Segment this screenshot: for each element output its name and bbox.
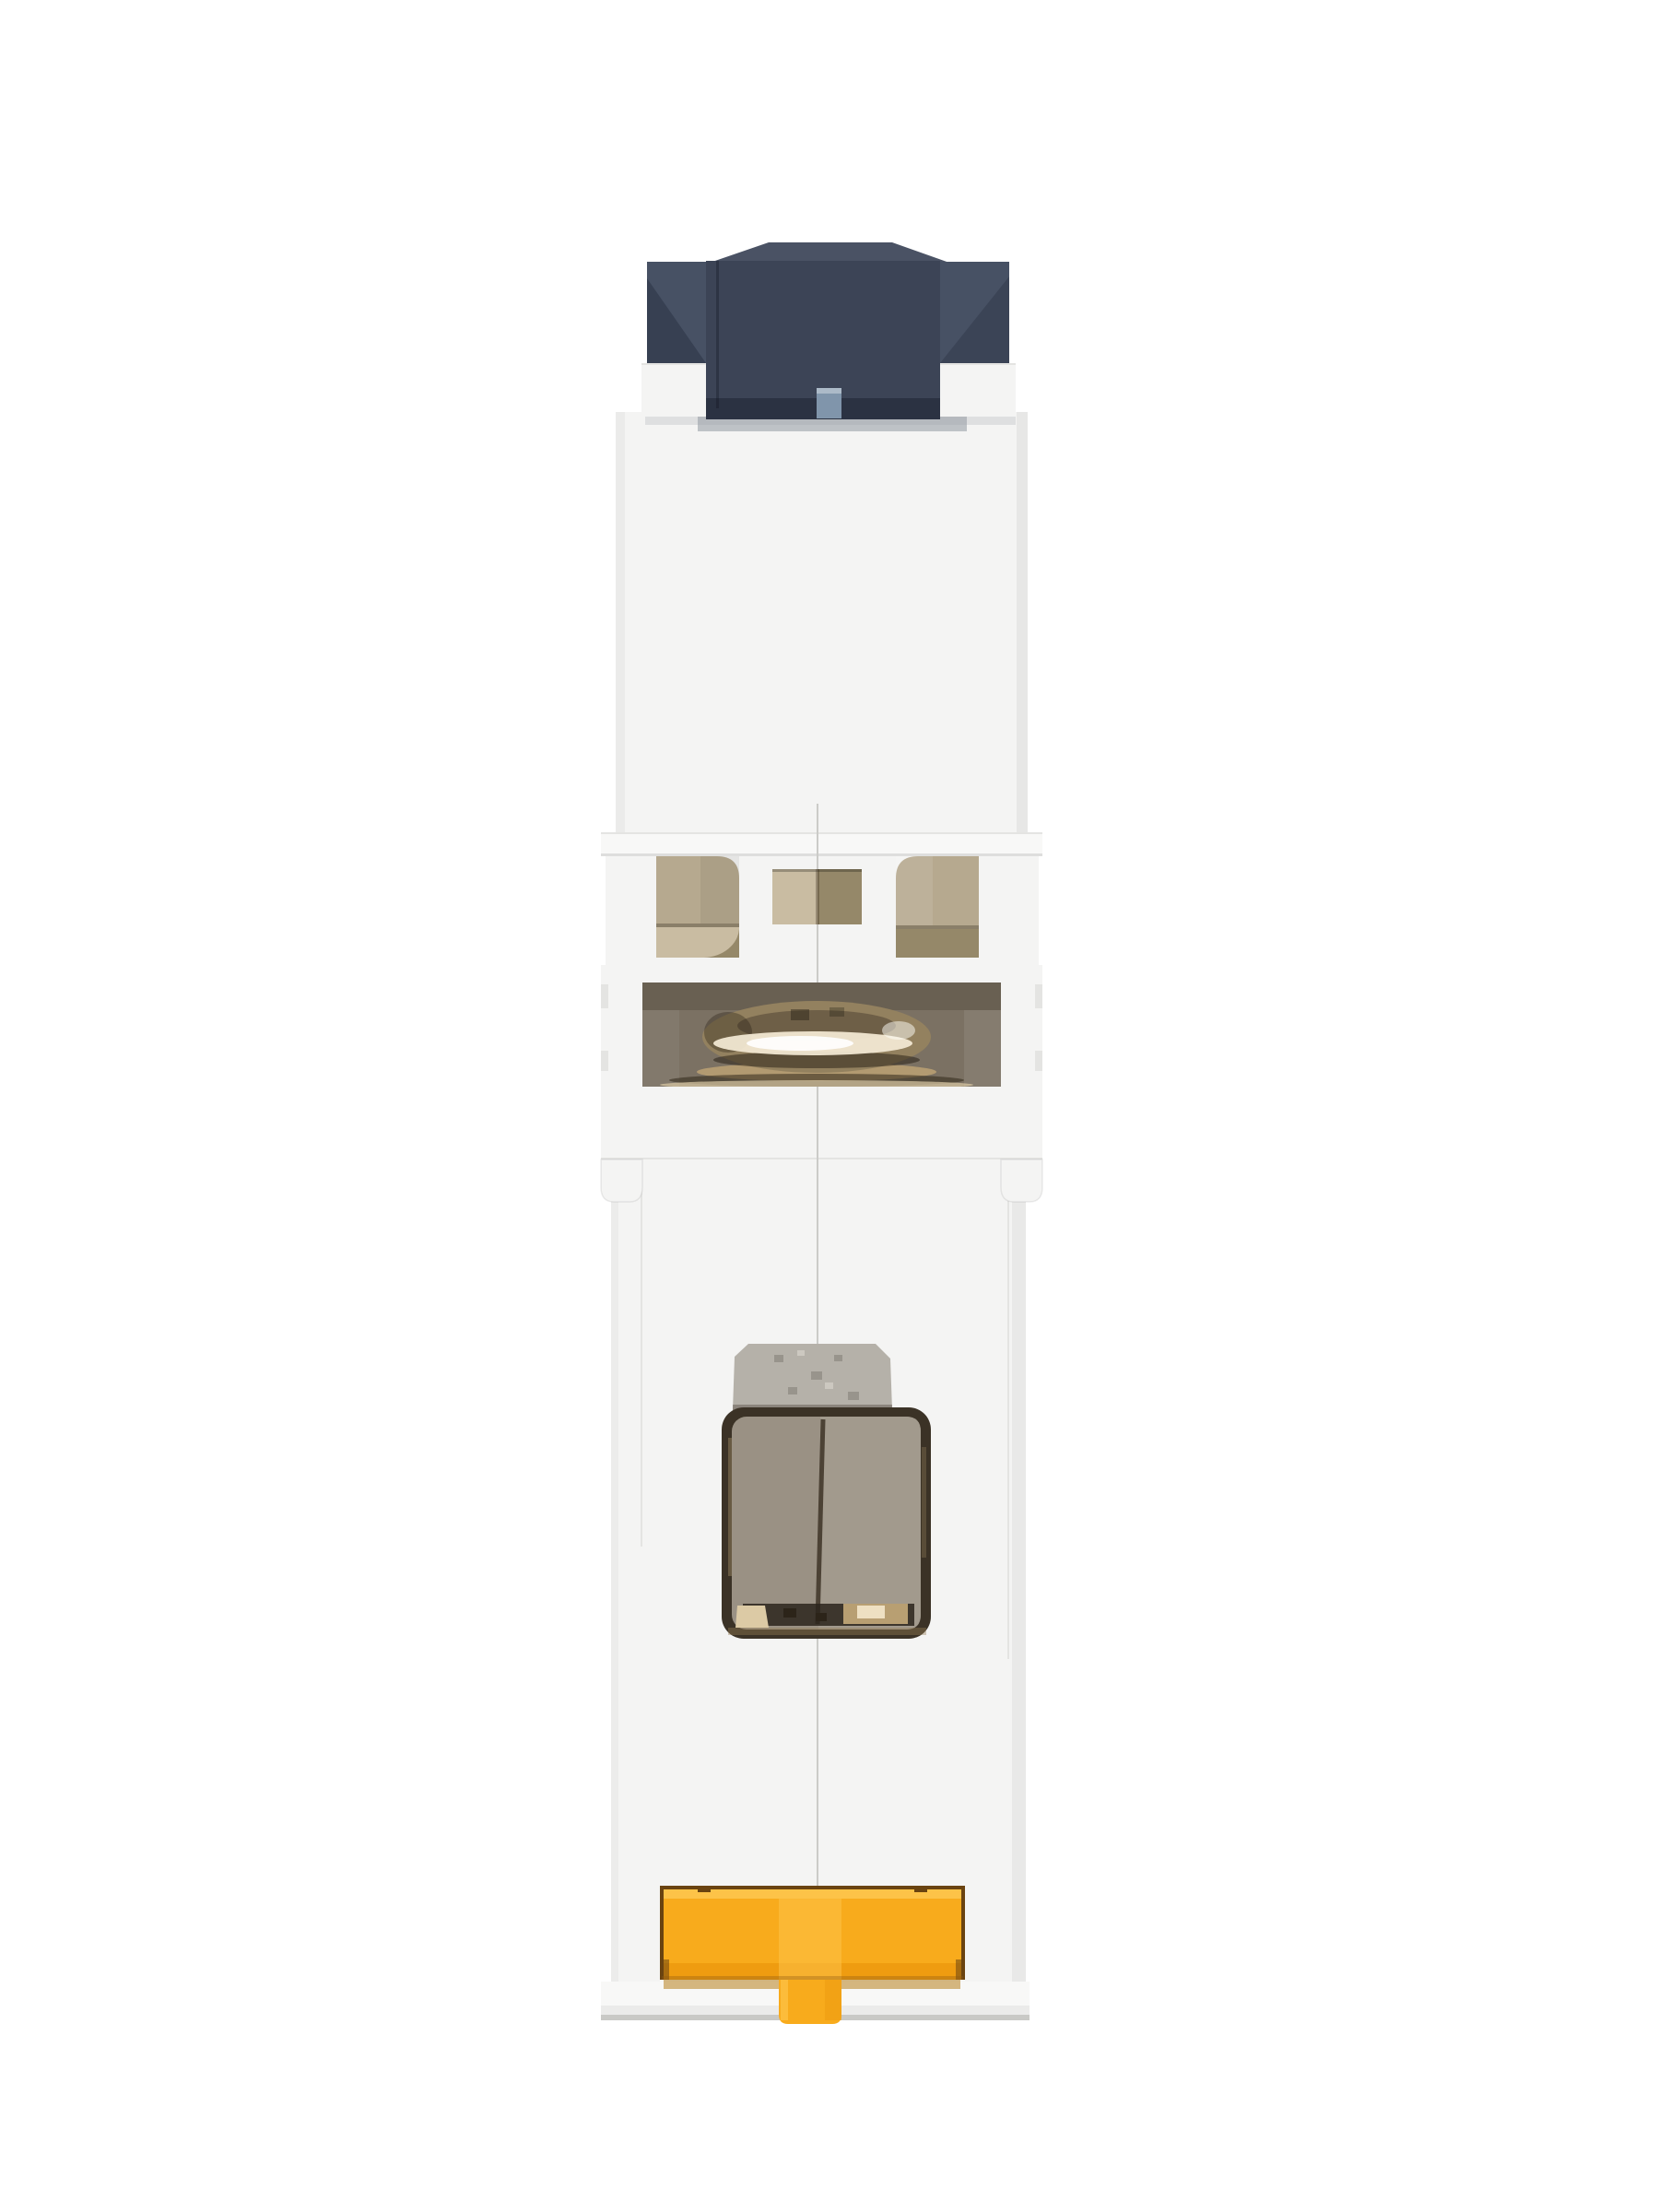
housing-right-notch-2 [1035, 1051, 1042, 1071]
right-vent-lower [896, 929, 979, 958]
housing-right-notch-1 [1035, 984, 1042, 1008]
plate-speckle [848, 1392, 859, 1400]
left-vent-inner-shade [700, 856, 739, 924]
housing-left-notch-1 [601, 984, 608, 1008]
inspection-panel-right [818, 1417, 921, 1630]
toggle-column-seam [716, 261, 719, 408]
housing-left-notch-2 [601, 1051, 608, 1071]
cavity-left-light [642, 1010, 679, 1087]
breaker-photo-canvas [0, 0, 1659, 2212]
housing-lower-left-groove [641, 1159, 642, 1547]
housing-upper-right-shade [1017, 412, 1028, 836]
housing [601, 363, 1042, 2020]
plate-speckle-light [797, 1350, 805, 1356]
inspection-window [722, 1407, 931, 1639]
plate-speckle [774, 1355, 783, 1362]
plate-speckle [834, 1355, 842, 1361]
center-slot-dark-half [818, 869, 862, 924]
housing-lower-right-shade [1012, 1159, 1026, 2020]
housing-collar-top-line [601, 832, 1042, 834]
housing-left-foot [601, 1159, 642, 1202]
housing-upper-body [616, 412, 1028, 836]
plate-speckle-light [825, 1382, 833, 1389]
housing-right-foot [1001, 1159, 1042, 1202]
housing-cavity-band-bottom-line [601, 1158, 1042, 1159]
clip-tab-left-highlight [781, 1980, 788, 2020]
inspection-dark-speckle [816, 1613, 827, 1621]
right-vent-ledge [896, 925, 979, 929]
housing-collar [601, 832, 1042, 856]
clip-top-notch-left [698, 1886, 711, 1892]
clip-bar-center-light [779, 1895, 841, 1980]
clip-top-notch-right [914, 1886, 927, 1892]
product-photo [0, 0, 1659, 2212]
frame-right-glint [922, 1447, 926, 1558]
plate-speckle [788, 1387, 797, 1394]
cavity-right-light [964, 1010, 1001, 1087]
latch-plate [733, 1344, 892, 1410]
right-vent-inner-light [896, 856, 933, 925]
housing-collar-shadow [601, 853, 1042, 856]
loop-slot-mark-2 [829, 1007, 844, 1017]
housing-lower-right-groove [1007, 1198, 1009, 1659]
clip-bar-bottom-edge [662, 1976, 963, 1980]
loop-slot-mark-1 [791, 1009, 809, 1020]
clip-tab-right-shade [825, 1980, 841, 2020]
inspection-bottom-bronze-edge [728, 1628, 926, 1635]
inspection-glint-left [735, 1606, 769, 1628]
toggle-indicator-tab-highlight [817, 388, 841, 394]
housing-upper-left-shade [616, 412, 625, 836]
center-slot-seam-shadow [816, 869, 819, 924]
inspection-dark-speckle [783, 1608, 796, 1618]
left-vent-ledge [656, 924, 739, 927]
loop-right-glint [882, 1021, 915, 1040]
terminal-cavity [642, 982, 1001, 1089]
inspection-glint-bright-spot [857, 1606, 885, 1618]
plate-speckle [811, 1371, 822, 1380]
loop-specular-core [747, 1036, 853, 1051]
housing-lower-left-shade [611, 1159, 618, 2020]
